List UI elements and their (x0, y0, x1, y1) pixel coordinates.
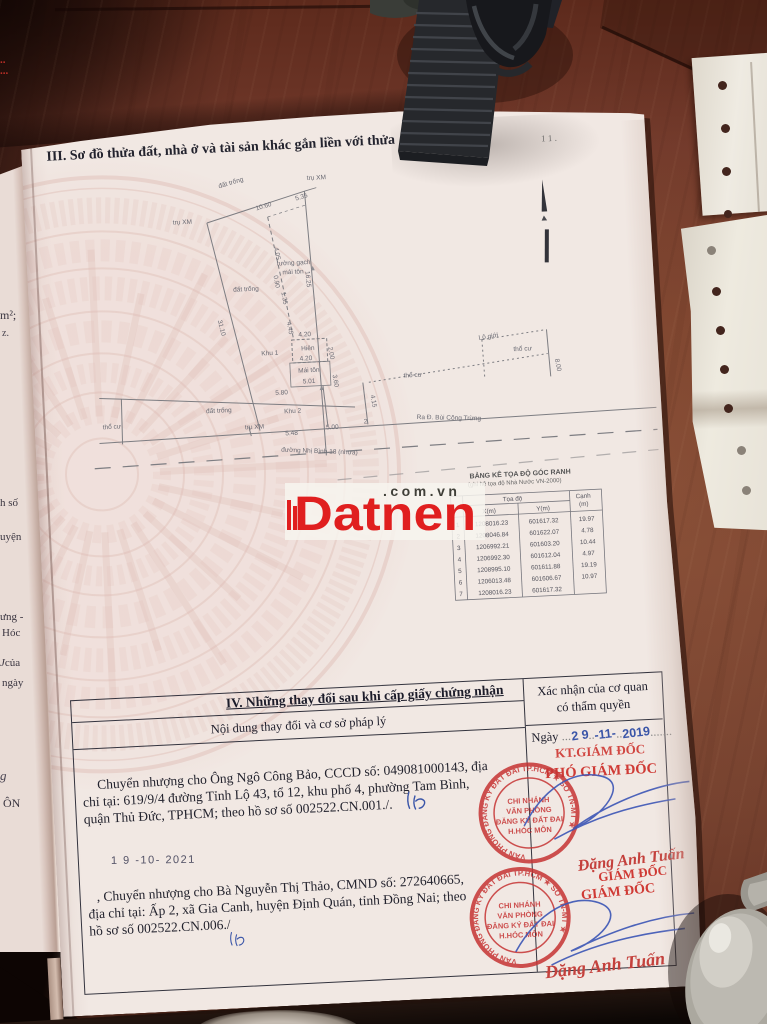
svg-text:601617.32: 601617.32 (532, 586, 563, 594)
svg-text:1208016.23: 1208016.23 (478, 589, 512, 598)
svg-text:31.10: 31.10 (216, 319, 227, 337)
svg-text:tường gạch: tường gạch (277, 259, 311, 268)
svg-text:đất trống: đất trống (233, 284, 259, 294)
svg-text:trụ XM: trụ XM (245, 423, 264, 431)
svg-text:mái tôn: mái tôn (282, 268, 304, 276)
svg-text:đất trống: đất trống (217, 174, 245, 190)
svg-text:10.60: 10.60 (255, 201, 273, 213)
svg-text:5.80: 5.80 (275, 389, 288, 397)
svg-text:trụ XM: trụ XM (173, 219, 192, 227)
svg-text:1206013.48: 1206013.48 (478, 577, 512, 586)
svg-text:1206992.30: 1206992.30 (476, 554, 510, 563)
svg-text:0.90: 0.90 (272, 275, 281, 289)
svg-text:19.19: 19.19 (581, 561, 598, 569)
svg-text:10.44: 10.44 (580, 538, 597, 546)
svg-text:Y(m): Y(m) (536, 505, 550, 513)
svg-text:7: 7 (459, 591, 463, 598)
svg-text:đất trống: đất trống (206, 405, 232, 415)
svg-text:trụ XM: trụ XM (307, 174, 326, 182)
svg-text:5.01: 5.01 (303, 378, 316, 386)
svg-text:19.97: 19.97 (579, 515, 596, 523)
svg-text:6: 6 (459, 579, 463, 586)
svg-text:3: 3 (457, 545, 461, 552)
svg-text:Lộ giới: Lộ giới (478, 332, 499, 342)
svg-text:3.60: 3.60 (330, 374, 339, 388)
svg-text:4: 4 (457, 556, 461, 563)
svg-text:4.20: 4.20 (298, 331, 311, 339)
svg-text:thổ cư: thổ cư (403, 371, 422, 380)
svg-text:5: 5 (458, 568, 462, 575)
svg-text:4.05: 4.05 (272, 247, 281, 261)
svg-text:4.20: 4.20 (299, 355, 312, 363)
svg-text:16.25: 16.25 (303, 271, 312, 288)
svg-text:10.97: 10.97 (581, 573, 598, 581)
svg-text:Ra Đ. Bùi Công Trừng: Ra Đ. Bùi Công Trừng (417, 414, 482, 422)
svg-text:Cạnh: Cạnh (576, 493, 592, 501)
svg-text:601622.07: 601622.07 (529, 529, 560, 537)
svg-text:Mái tôn: Mái tôn (298, 367, 320, 375)
svg-text:thổ cư: thổ cư (513, 344, 532, 353)
svg-text:8.00: 8.00 (553, 358, 562, 372)
svg-text:601606.67: 601606.67 (531, 575, 562, 583)
svg-text:5.00: 5.00 (326, 424, 339, 432)
svg-text:1206992.21: 1206992.21 (476, 543, 510, 552)
svg-text:(m): (m) (579, 501, 589, 508)
svg-text:4.78: 4.78 (581, 527, 594, 535)
svg-text:601617.32: 601617.32 (529, 517, 560, 525)
svg-text:5.48: 5.48 (285, 430, 298, 438)
svg-text:Hiên: Hiên (301, 345, 315, 353)
svg-text:601612.04: 601612.04 (530, 552, 561, 560)
svg-text:1.35: 1.35 (279, 291, 288, 305)
svg-text:1208995.10: 1208995.10 (477, 566, 511, 575)
svg-text:601611.88: 601611.88 (531, 563, 561, 571)
svg-text:Khu 1: Khu 1 (261, 350, 279, 358)
svg-text:4.97: 4.97 (582, 550, 595, 558)
svg-text:Khu 2: Khu 2 (284, 408, 302, 416)
svg-text:Tọa độ: Tọa độ (503, 495, 523, 503)
svg-text:601603.20: 601603.20 (530, 540, 561, 548)
svg-text:4.45: 4.45 (285, 321, 294, 335)
svg-text:2: 2 (364, 418, 368, 425)
svg-text:thổ cư: thổ cư (103, 422, 122, 431)
svg-text:4.15: 4.15 (369, 394, 378, 408)
